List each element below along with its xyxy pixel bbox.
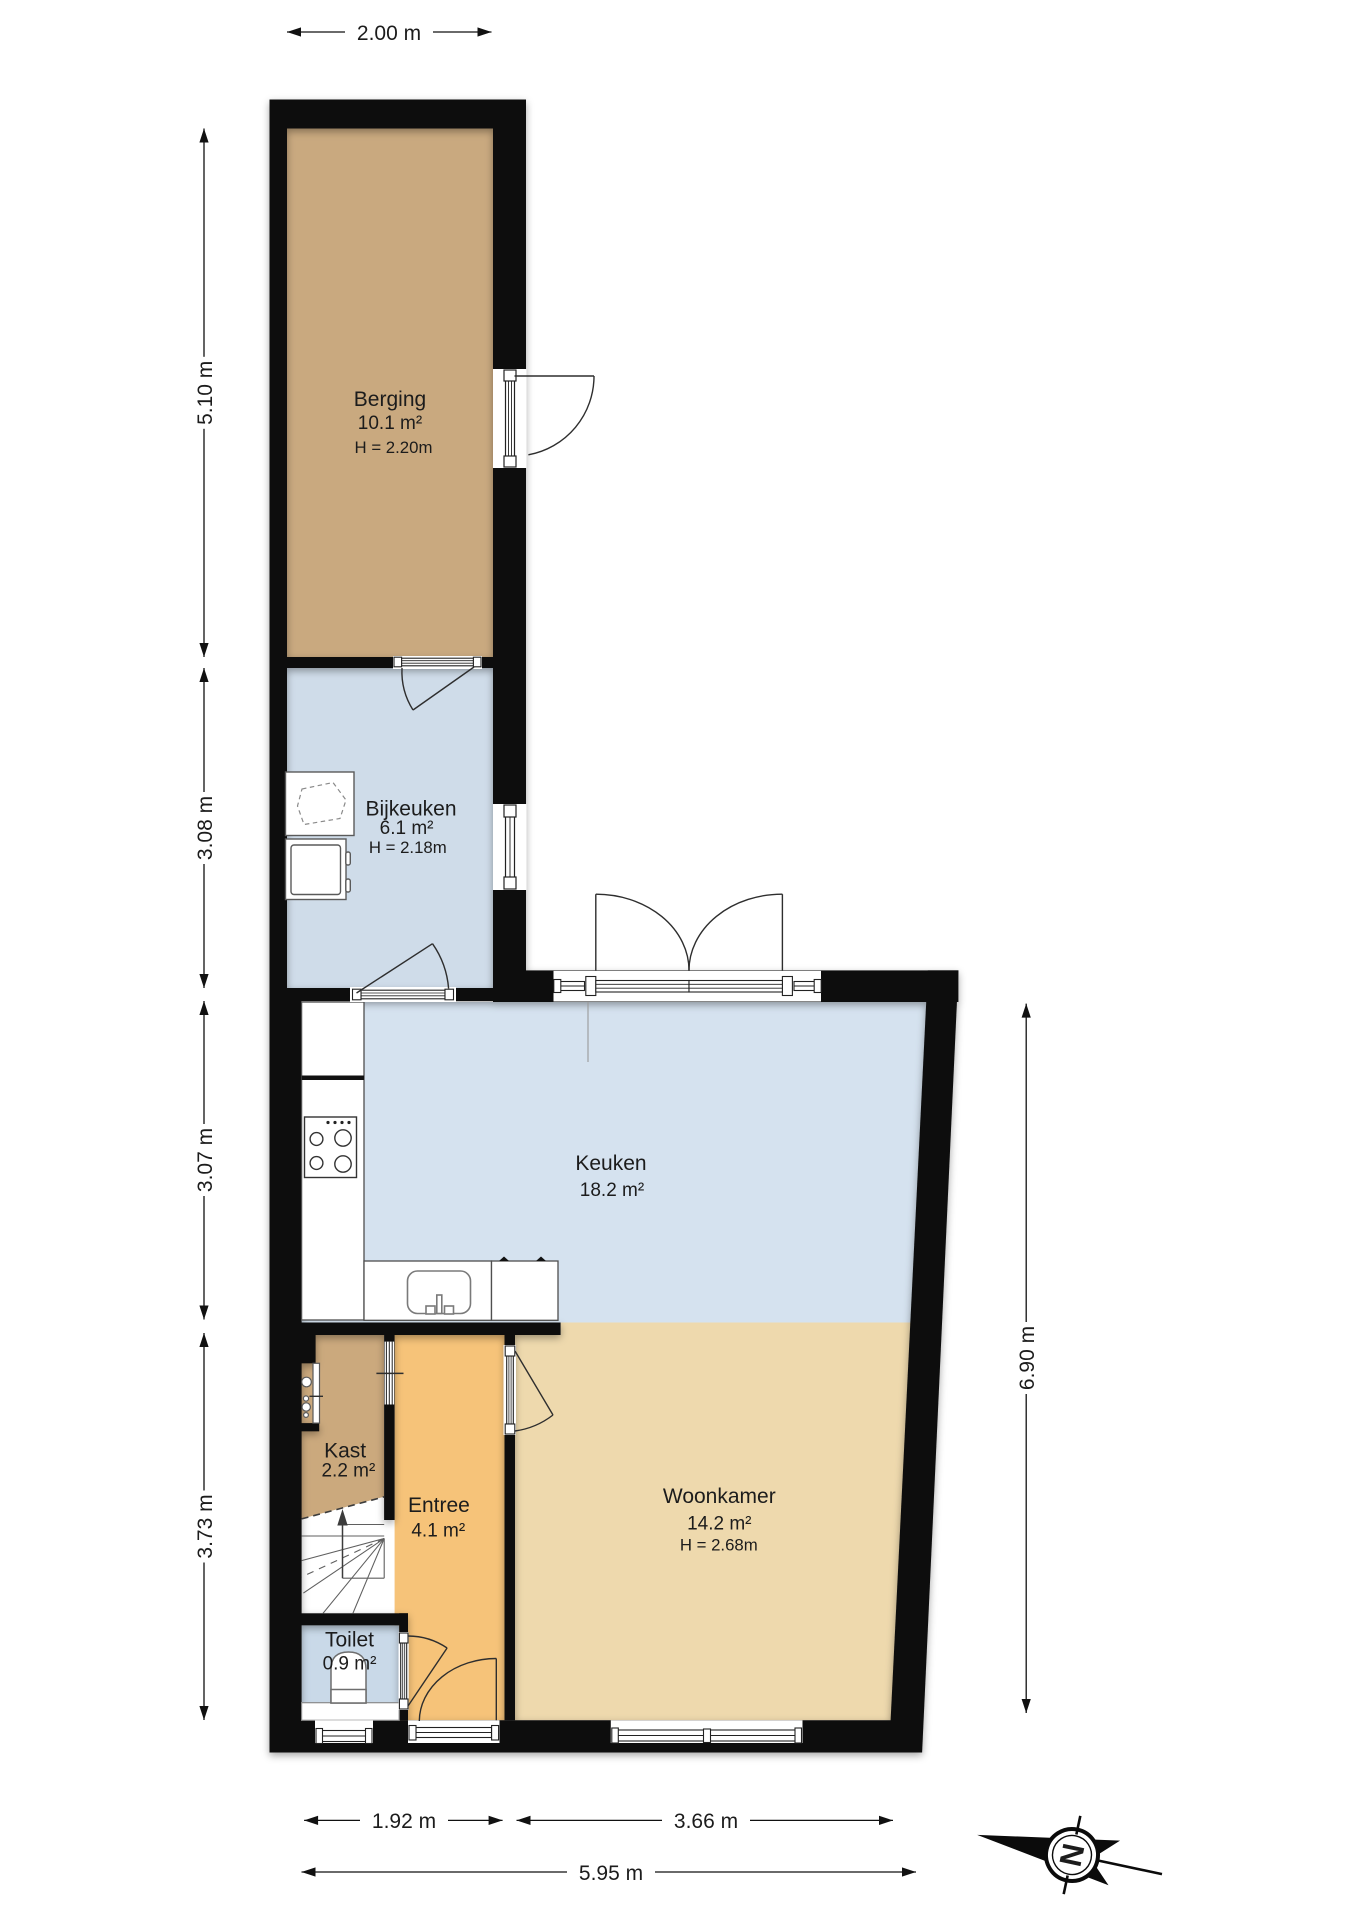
svg-text:H = 2.18m: H = 2.18m bbox=[369, 838, 447, 857]
svg-text:Toilet: Toilet bbox=[325, 1628, 374, 1651]
svg-text:14.2 m²: 14.2 m² bbox=[687, 1514, 751, 1535]
svg-text:2.00 m: 2.00 m bbox=[357, 22, 421, 45]
svg-text:18.2 m²: 18.2 m² bbox=[580, 1180, 644, 1201]
svg-text:Berging: Berging bbox=[354, 388, 426, 411]
svg-text:Keuken: Keuken bbox=[575, 1152, 646, 1175]
svg-text:3.66 m: 3.66 m bbox=[674, 1810, 738, 1833]
svg-text:H = 2.20m: H = 2.20m bbox=[355, 438, 433, 457]
svg-text:2.2 m²: 2.2 m² bbox=[321, 1460, 375, 1481]
svg-text:10.1 m²: 10.1 m² bbox=[358, 413, 422, 434]
svg-text:Woonkamer: Woonkamer bbox=[663, 1485, 776, 1508]
svg-text:3.08 m: 3.08 m bbox=[194, 796, 217, 860]
svg-text:5.95 m: 5.95 m bbox=[579, 1862, 643, 1885]
svg-text:H = 2.68m: H = 2.68m bbox=[680, 1535, 758, 1554]
svg-text:4.1 m²: 4.1 m² bbox=[411, 1520, 465, 1541]
svg-text:3.07 m: 3.07 m bbox=[194, 1128, 217, 1192]
svg-text:6.90 m: 6.90 m bbox=[1016, 1326, 1039, 1390]
svg-text:Bijkeuken: Bijkeuken bbox=[365, 797, 456, 820]
svg-text:Entree: Entree bbox=[408, 1494, 470, 1517]
svg-text:3.73 m: 3.73 m bbox=[194, 1494, 217, 1558]
svg-text:1.92 m: 1.92 m bbox=[372, 1810, 436, 1833]
svg-text:6.1 m²: 6.1 m² bbox=[380, 818, 434, 839]
svg-text:5.10 m: 5.10 m bbox=[194, 361, 217, 425]
svg-text:Kast: Kast bbox=[324, 1440, 366, 1463]
svg-text:0.9 m²: 0.9 m² bbox=[323, 1654, 377, 1675]
